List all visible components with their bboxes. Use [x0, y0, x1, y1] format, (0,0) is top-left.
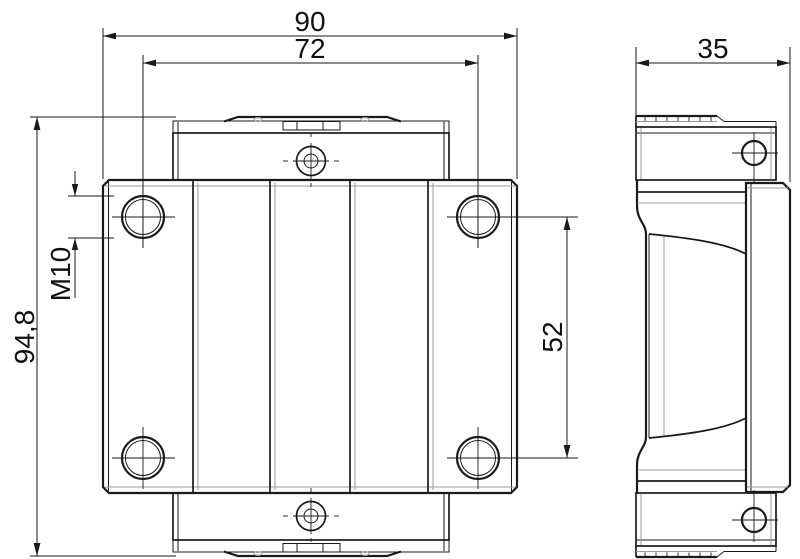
side-clamp-plate	[746, 183, 790, 492]
arrowhead	[564, 445, 571, 458]
side-end-cap-top	[636, 127, 778, 184]
front-body	[103, 180, 517, 493]
arrowhead	[465, 60, 478, 67]
side-seal-strip-top	[636, 116, 776, 127]
arrowhead	[34, 543, 41, 556]
front-raceway-lines	[193, 181, 433, 492]
arrowhead	[34, 117, 41, 130]
seal-strip-top	[173, 121, 449, 133]
dimension-hole-spacing-horizontal-label: 72	[294, 33, 325, 64]
arrowhead	[72, 184, 78, 196]
mounting-hole-bottom-left	[112, 427, 175, 489]
end-cap-body	[636, 127, 776, 180]
clamp-plate-outline	[746, 183, 790, 492]
strip-step	[717, 116, 724, 122]
dimension-hole-spacing-vertical: 52	[447, 217, 578, 458]
dimension-hole-spacing-vertical-label: 52	[537, 321, 568, 352]
end-cap-body	[636, 493, 776, 546]
front-body-outline	[103, 180, 517, 493]
seal-strip-top-slot	[283, 122, 340, 131]
arrowhead	[103, 33, 116, 40]
arrowhead	[143, 60, 156, 67]
technical-drawing-canvas: 90 72 35 94,8	[0, 0, 800, 559]
dimension-overall-length: 94,8	[9, 117, 176, 556]
dimensions: 90 72 35 94,8	[9, 6, 790, 556]
arrowhead	[504, 33, 517, 40]
technical-drawing-page: 90 72 35 94,8	[0, 0, 800, 559]
dimension-side-width: 35	[636, 33, 790, 182]
grease-nipple-bottom	[283, 488, 339, 542]
dimension-overall-length-label: 94,8	[9, 310, 40, 365]
side-view	[636, 116, 790, 557]
side-body-left-outline	[637, 180, 646, 493]
arrowhead	[564, 217, 571, 230]
dimension-mounting-thread-label: M10	[45, 247, 76, 301]
dimension-side-width-label: 35	[697, 33, 728, 64]
arrowhead	[636, 60, 649, 67]
side-body	[637, 180, 746, 493]
side-seal-strip-bottom	[636, 546, 776, 557]
side-end-cap-bottom	[636, 490, 778, 546]
arrowhead	[777, 60, 790, 67]
strip-step	[717, 552, 724, 558]
dimension-overall-width: 90	[103, 6, 517, 179]
front-view	[103, 117, 517, 556]
seal-strip-bottom-slot	[283, 544, 340, 553]
